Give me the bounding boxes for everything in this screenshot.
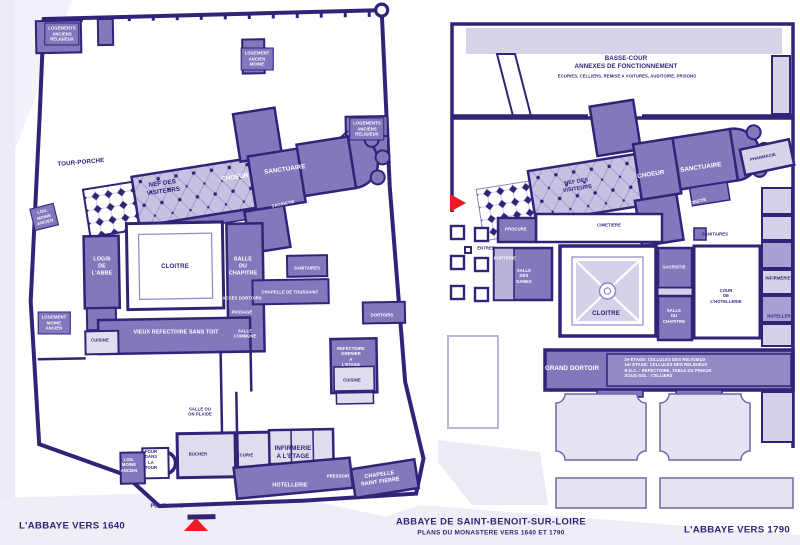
garden-parterre-2	[660, 394, 750, 460]
abbey-plans-map: LOGEMENTS ANCIENS RELIGIEUXLOGEMENT ANCI…	[0, 0, 800, 545]
plan-1790-drawing	[438, 24, 794, 508]
pont-levis-bar-1640	[187, 514, 215, 519]
caption-1790: L'ABBAYE VERS 1790	[684, 525, 790, 536]
plans-drawing	[0, 0, 800, 545]
garden-parterre-1	[556, 394, 646, 460]
cimetiere-court-1790	[536, 214, 662, 242]
map-subtitle: PLANS DU MONASTERE VERS 1640 ET 1790	[396, 530, 586, 537]
logis-abbe-1640	[84, 236, 120, 309]
caption-1640: L'ABBAYE VERS 1640	[19, 521, 125, 532]
title-block: ABBAYE DE SAINT-BENOIT-SUR-LOIRE PLANS D…	[396, 516, 586, 537]
corner-tower-1640	[376, 4, 388, 16]
road-1790	[438, 440, 548, 505]
nave-1790	[528, 154, 643, 222]
page-edge-band	[0, 0, 15, 545]
cour-hotellerie-1790	[694, 246, 760, 338]
refectoire-1640	[98, 317, 251, 354]
plan-1640-drawing	[26, 4, 425, 523]
procure-1790	[498, 218, 536, 242]
entrance-marker-icon-1790	[450, 194, 466, 212]
map-title: ABBAYE DE SAINT-BENOIT-SUR-LOIRE	[396, 516, 586, 527]
